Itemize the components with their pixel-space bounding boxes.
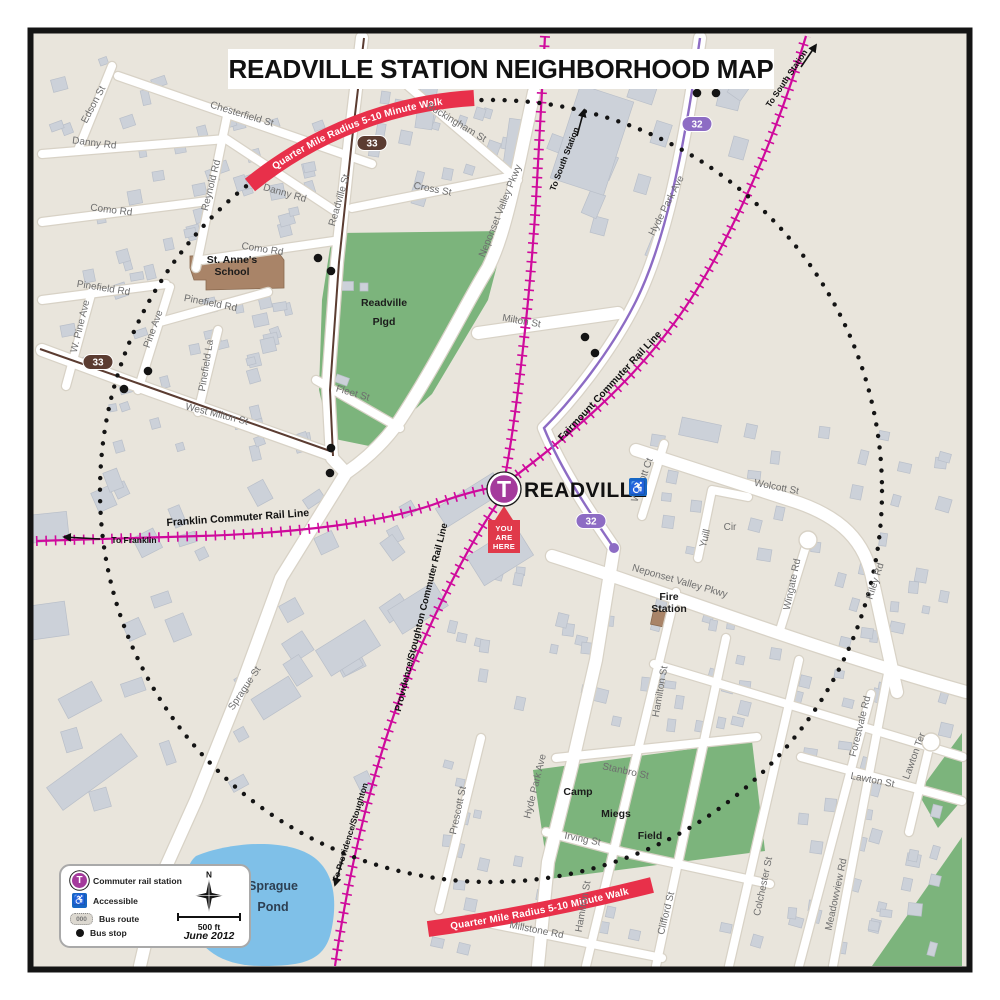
place-label: Station <box>651 603 687 615</box>
bus-route-number: 33 <box>92 358 104 369</box>
legend-label: Commuter rail station <box>93 876 182 886</box>
building <box>908 581 919 593</box>
building <box>922 606 930 614</box>
building <box>360 283 368 291</box>
building <box>457 942 471 955</box>
building <box>708 619 717 631</box>
building <box>479 639 490 653</box>
bus-stop-dot <box>591 349 600 358</box>
accessible-icon: ♿ <box>72 893 87 908</box>
direction-label: To Franklin <box>111 535 156 545</box>
building <box>788 907 797 919</box>
building <box>757 548 772 562</box>
bus-route-number: 32 <box>585 517 597 528</box>
place-label: St. Anne's <box>207 254 258 266</box>
bus-stop-dot <box>693 89 702 98</box>
place-label: Field <box>638 830 663 842</box>
building <box>798 813 809 825</box>
you-are-here-line: HERE <box>493 542 515 551</box>
building <box>605 906 616 918</box>
bus-stop-dot <box>581 333 590 342</box>
building <box>513 573 524 586</box>
building <box>662 515 675 529</box>
building <box>152 170 165 181</box>
building <box>736 655 745 665</box>
building <box>376 123 387 137</box>
building <box>744 423 758 439</box>
building <box>890 601 899 612</box>
svg-text:♿: ♿ <box>630 480 646 495</box>
place-label: School <box>214 266 249 278</box>
building <box>770 451 780 465</box>
bus-route-shield: 33 <box>83 355 113 370</box>
building <box>879 533 888 547</box>
building <box>550 644 559 654</box>
building <box>850 485 863 501</box>
building <box>464 898 478 912</box>
bus-stop-dot <box>327 444 336 453</box>
building <box>914 568 928 583</box>
bus-route-number: 33 <box>366 139 378 150</box>
bus-route-icon: 000 <box>70 913 93 925</box>
building <box>289 207 300 217</box>
building <box>303 162 316 173</box>
building <box>163 238 174 251</box>
bus-route-shield: 32 <box>682 117 712 132</box>
building <box>880 909 893 918</box>
compass-rose: N <box>191 869 227 913</box>
bus-stop-dot <box>712 89 721 98</box>
building <box>748 518 762 533</box>
building <box>127 189 143 205</box>
building <box>824 798 837 812</box>
building <box>175 442 185 452</box>
building <box>442 168 454 181</box>
building <box>868 920 880 931</box>
building <box>661 493 671 502</box>
building <box>666 470 678 484</box>
building <box>473 810 481 819</box>
building <box>674 695 684 709</box>
building <box>260 337 277 354</box>
place-label: Plgd <box>373 316 396 328</box>
place-label: Fire <box>659 591 678 603</box>
legend-label: Bus route <box>99 914 139 924</box>
place-label: Miegs <box>601 808 631 820</box>
place-label: Camp <box>563 786 592 798</box>
building <box>477 858 489 872</box>
bus-stop-dot <box>120 385 129 394</box>
building <box>908 849 919 862</box>
building <box>478 669 488 683</box>
building <box>667 719 676 732</box>
building <box>272 302 287 312</box>
building <box>720 922 733 933</box>
building <box>628 929 640 941</box>
bus-route-shield: 32 <box>576 514 606 529</box>
building <box>861 627 874 639</box>
building <box>810 840 823 854</box>
legend-item-bus-route: 000 Bus route <box>70 913 139 925</box>
bus-stop-dot <box>327 267 336 276</box>
legend-label: Accessible <box>93 896 138 906</box>
building <box>929 874 942 887</box>
you-are-here-line: ARE <box>496 533 513 542</box>
compass-north-label: N <box>206 870 212 879</box>
building <box>818 426 830 439</box>
bus-stop-dot <box>144 367 153 376</box>
map-date: June 2012 <box>165 930 253 942</box>
bus-route-shield: 33 <box>357 136 387 151</box>
building <box>456 632 467 642</box>
you-are-here-line: YOU <box>495 524 513 533</box>
building <box>399 130 413 145</box>
legend-item-accessible: ♿ Accessible <box>70 893 138 908</box>
building <box>799 675 812 689</box>
building <box>690 500 701 512</box>
building <box>939 590 950 603</box>
bus-stop-dot <box>326 469 335 478</box>
building <box>611 716 621 727</box>
cul-de-sac <box>799 531 817 549</box>
place-label: Pond <box>257 900 288 914</box>
map-title: READVILLE STATION NEIGHBORHOOD MAP <box>228 49 774 89</box>
building <box>907 902 922 916</box>
map-canvas: Quarter Mile Radius 5-10 Minute Walk Qua… <box>0 0 1000 1000</box>
legend-item-bus-stop: Bus stop <box>70 928 127 938</box>
bus-stop-icon <box>76 929 84 937</box>
bus-stop-dot <box>314 254 323 263</box>
legend-item-commuter-rail: T Commuter rail station <box>70 873 182 888</box>
building <box>770 647 782 660</box>
t-logo-letter: T <box>497 476 511 502</box>
street-label: Cir <box>724 522 737 533</box>
legend: T Commuter rail station ♿ Accessible 000… <box>59 864 251 948</box>
t-logo-icon: T <box>72 873 87 888</box>
building <box>938 722 953 738</box>
legend-label: Bus stop <box>90 928 127 938</box>
bus-route-number: 32 <box>691 120 703 131</box>
building <box>380 91 390 104</box>
place-label: Sprague <box>248 879 298 893</box>
building <box>513 856 523 867</box>
building <box>189 343 201 355</box>
bus-route-32-terminus <box>609 543 619 553</box>
place-label: Readville <box>361 297 407 309</box>
